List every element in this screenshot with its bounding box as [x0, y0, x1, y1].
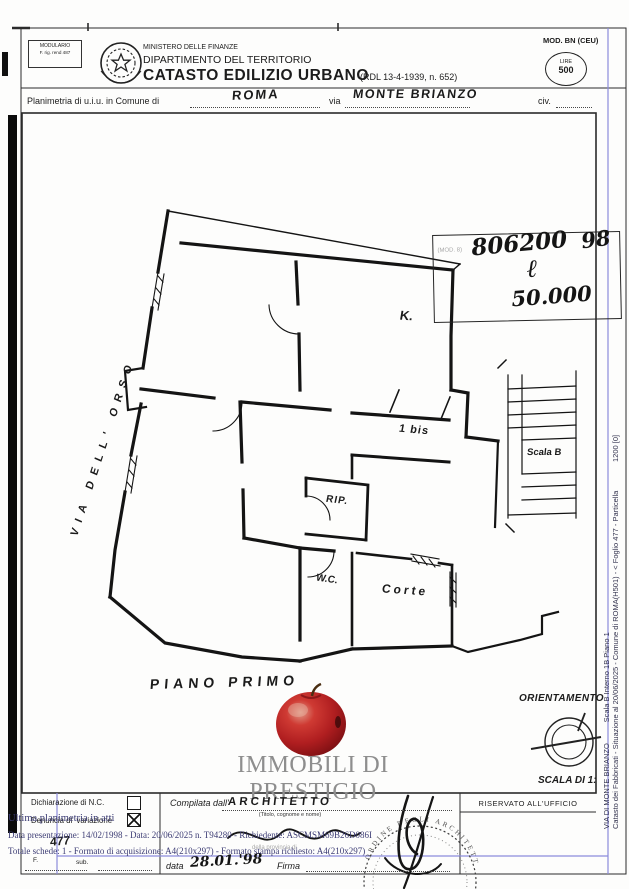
document-title: CATASTO EDILIZIO URBANO — [143, 67, 369, 85]
room-label-rip: RIP. — [325, 494, 349, 507]
stamp-amount: 50.000 — [511, 281, 593, 312]
room-label-scala-b: Scala B — [526, 447, 561, 458]
orientation-label: ORIENTAMENTO — [498, 693, 604, 704]
ministry-label: MINISTERO DELLE FINANZE — [143, 44, 238, 51]
compilata-sub-label: (Titolo, cognome e nome) — [225, 812, 355, 818]
stamp-year: 98 — [580, 225, 612, 253]
declaration-var-checkbox — [127, 813, 141, 827]
declaration-nc-checkbox — [127, 796, 141, 810]
modulario-line2: F. rig. rend 487 — [29, 50, 81, 56]
compilata-label: Compilata dall' — [170, 798, 229, 808]
sub-label: sub. — [76, 859, 88, 866]
riservato-label: RISERVATO ALL'UFFICIO — [460, 799, 596, 808]
comune-value: ROMA — [231, 86, 280, 103]
scale-label: SCALA DI 1: — [538, 775, 597, 786]
side-text-particella: 1200 [0] — [611, 435, 620, 462]
overlay-ultima-planimetria: Ultima planimetria in atti — [8, 813, 114, 824]
staircase — [498, 360, 576, 532]
compilata-value: ARCHITETTO — [227, 796, 332, 808]
modulario-line1: MODULARIO — [29, 43, 81, 50]
modulario-box: MODULARIO F. rig. rend 487 — [28, 40, 82, 68]
declaration-nc-label: Dichiarazione di N.C. — [31, 798, 104, 807]
subject-prefix: Planimetria di u.i.u. in Comune di — [27, 96, 159, 106]
overlay-data-presentazione: Data presentazione: 14/02/1998 - Data: 2… — [8, 830, 372, 840]
room-label-1bis: 1 bis — [398, 423, 430, 437]
scan-artifact-bar — [8, 115, 17, 833]
fee-stamp-box: (MOD. 8) 806200 98 ℓ 50.000 — [432, 231, 622, 323]
mod-label: MOD. BN (CEU) — [543, 36, 598, 45]
f-label: F. — [33, 857, 38, 864]
civ-label: civ. — [538, 96, 551, 106]
data-label: data — [166, 861, 184, 871]
lire-value: 500 — [546, 65, 586, 75]
state-emblem-icon — [101, 43, 141, 83]
department-label: DIPARTIMENTO DEL TERRITORIO — [143, 54, 311, 66]
via-value: MONTE BRIANZO — [352, 87, 479, 101]
side-text-address: VIA DI MONTE BRIANZO Scala B Interno 1B … — [602, 632, 611, 829]
via-label: via — [329, 96, 341, 106]
document-title-ref: (RDL 13-4-1939, n. 652) — [360, 72, 457, 82]
room-label-k: K. — [399, 308, 414, 324]
scanned-cadastral-document: ORDINE DEGLI ARCHITETTI MODULARIO F. rig… — [0, 0, 629, 889]
side-text-catasto: Catasto dei Fabbricati - Situazione al 2… — [611, 491, 620, 829]
stamp-faint-label: (MOD. 8) — [437, 247, 462, 254]
stamp-script-mark: ℓ — [527, 254, 538, 284]
firma-label: Firma — [277, 861, 300, 871]
compass-icon — [531, 713, 601, 766]
overlay-totale-schede: Totale schede: 1 - Formato di acquisizio… — [8, 846, 365, 856]
lire-oval: LIRE 500 — [545, 52, 587, 86]
apple-watermark — [276, 684, 346, 756]
